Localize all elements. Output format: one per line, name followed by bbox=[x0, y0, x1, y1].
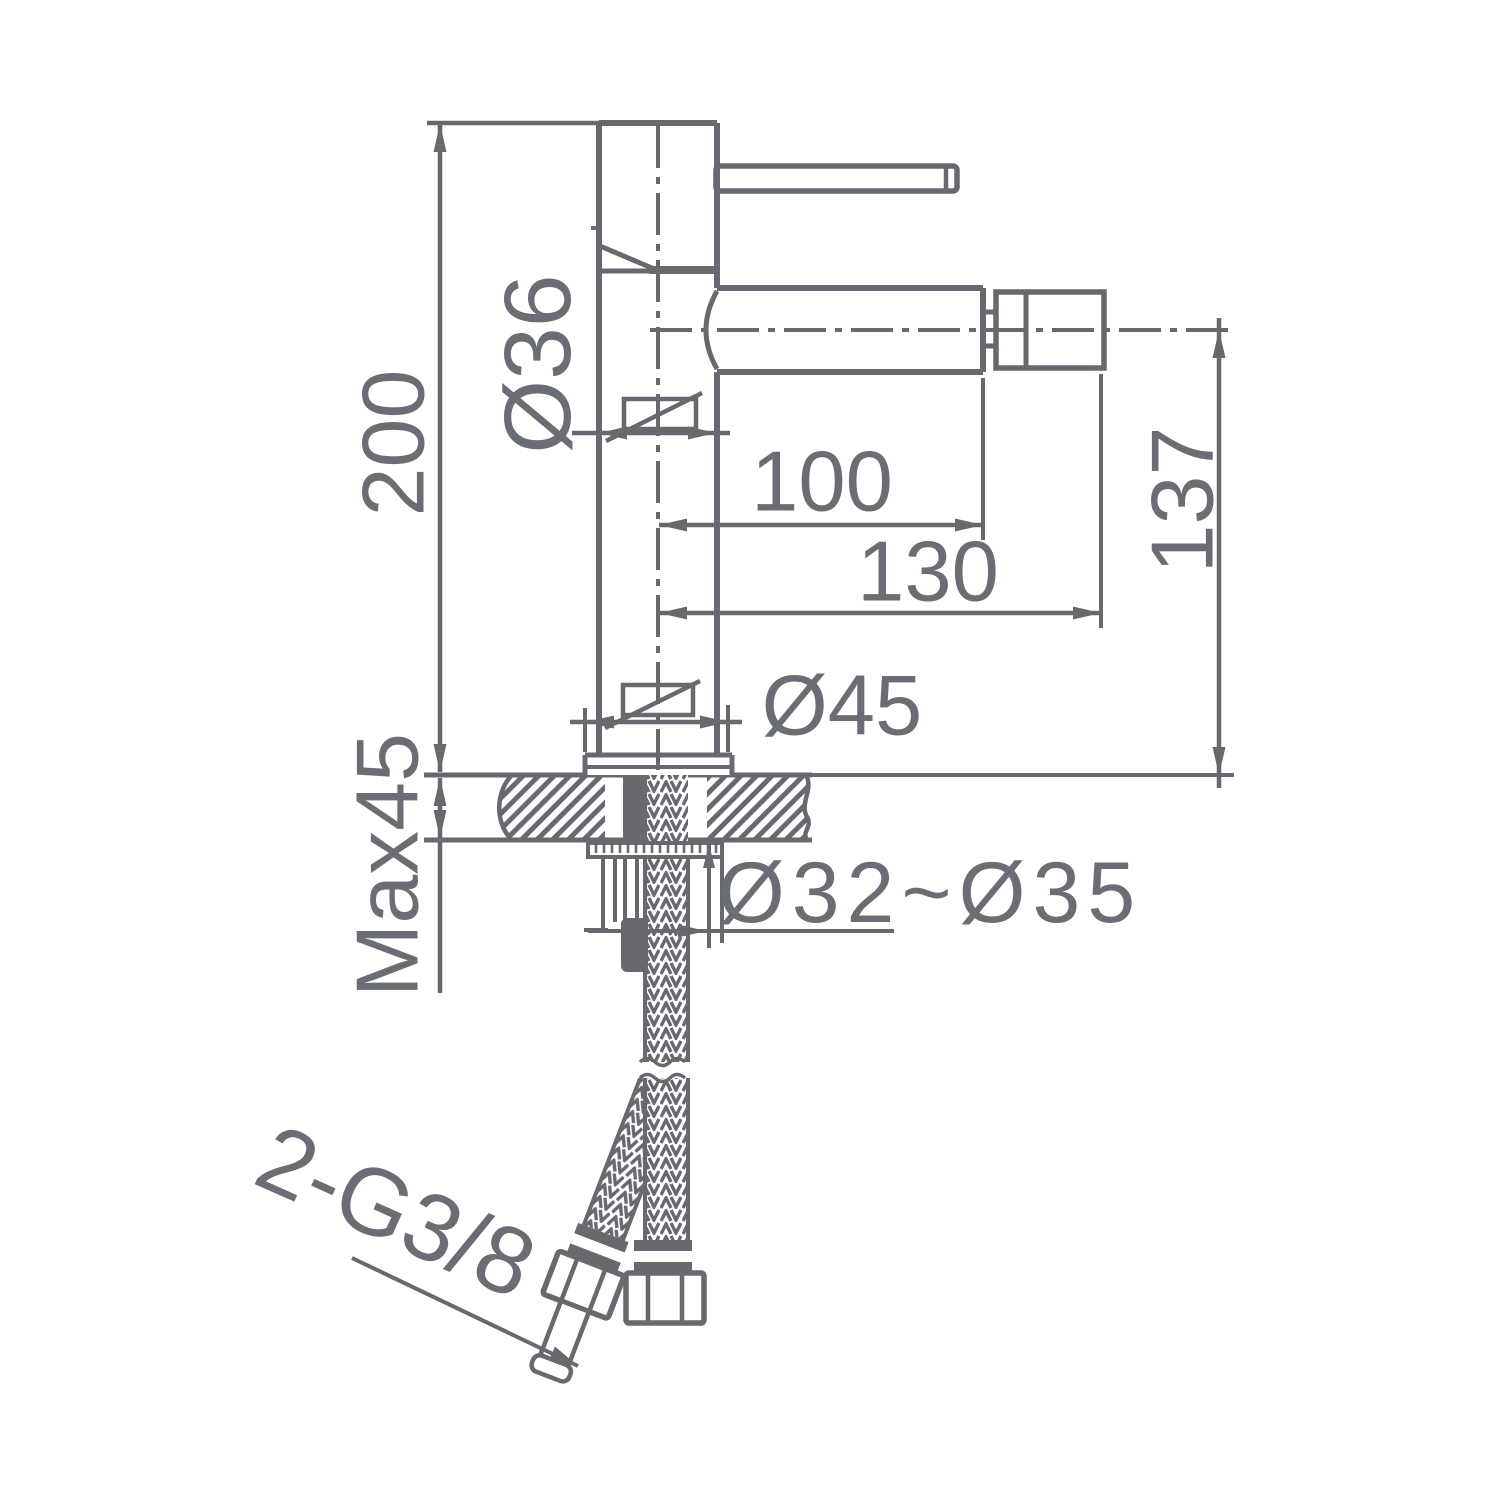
arrow-down bbox=[1213, 747, 1226, 775]
label-overall-reach: 130 bbox=[857, 525, 999, 620]
hose-braid bbox=[645, 845, 688, 1240]
hose-ferrule bbox=[634, 1240, 692, 1251]
mounting-washer bbox=[588, 843, 722, 857]
label-deck-thickness: Max45 bbox=[338, 733, 437, 997]
dimension-deck-thickness: Max45 bbox=[338, 733, 447, 997]
label-body-diameter: Ø36 bbox=[485, 274, 591, 454]
dimension-spout-height: 137 bbox=[1133, 318, 1232, 788]
label-overall-height: 200 bbox=[344, 370, 443, 517]
dimension-supply-thread: 2-G3/8 bbox=[242, 1105, 578, 1366]
countertop-section bbox=[424, 773, 1234, 845]
arrow-right bbox=[678, 925, 706, 938]
arrow-up bbox=[434, 124, 447, 152]
tie-rod-section bbox=[623, 775, 647, 841]
deck-hatch-left bbox=[499, 775, 605, 840]
arrow-right bbox=[1073, 607, 1101, 620]
label-spout-reach: 100 bbox=[751, 435, 893, 530]
faucet-dimension-drawing: 200 Max45 Ø36 Ø45 100 bbox=[0, 0, 1500, 1500]
label-base-diameter: Ø45 bbox=[762, 659, 923, 754]
hose-in-hole bbox=[647, 773, 688, 845]
deck-hatch-right bbox=[707, 775, 809, 840]
label-spout-height: 137 bbox=[1133, 427, 1232, 574]
handle-lever bbox=[716, 166, 957, 191]
label-mounting-hole: Ø32~Ø35 bbox=[718, 845, 1142, 941]
arrow-up bbox=[1213, 330, 1226, 358]
label-supply-thread: 2-G3/8 bbox=[242, 1105, 550, 1320]
mounting-locknut bbox=[621, 918, 648, 972]
hose-nut bbox=[626, 1273, 704, 1323]
